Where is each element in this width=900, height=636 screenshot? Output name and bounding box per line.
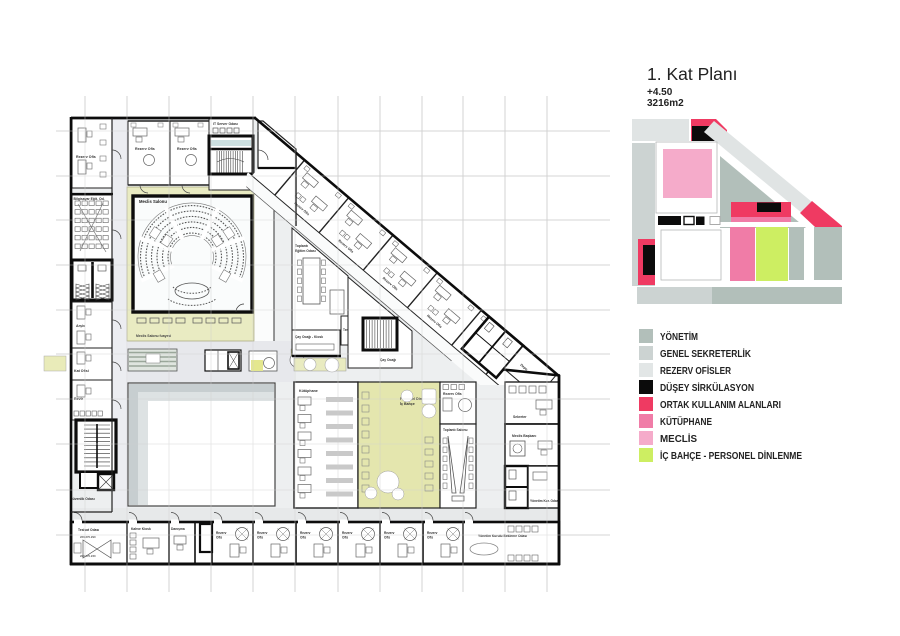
- svg-text:Rezerv: Rezerv: [257, 531, 268, 535]
- svg-text:Sekreter: Sekreter: [513, 415, 527, 419]
- svg-text:Rezerv Ofis: Rezerv Ofis: [443, 392, 462, 396]
- svg-text:3216m2: 3216m2: [647, 98, 684, 109]
- svg-text:Arşiv: Arşiv: [76, 324, 85, 328]
- svg-text:İÇ BAHÇE - PERSONEL DİNLENME: İÇ BAHÇE - PERSONEL DİNLENME: [660, 449, 802, 462]
- svg-text:Toplantı Salonu: Toplantı Salonu: [443, 428, 467, 432]
- svg-text:+4.50: +4.50: [647, 87, 673, 98]
- svg-text:ORTAK KULLANIM ALANLARI: ORTAK KULLANIM ALANLARI: [660, 399, 781, 411]
- svg-text:220.270.230: 220.270.230: [80, 554, 96, 558]
- svg-text:Ofis: Ofis: [216, 536, 222, 540]
- svg-text:Rezerv: Rezerv: [300, 531, 311, 535]
- svg-text:YÖNETİM: YÖNETİM: [660, 330, 698, 343]
- svg-text:Rezerv: Rezerv: [427, 531, 438, 535]
- svg-text:Bilgisayar Eğit. Od.: Bilgisayar Eğit. Od.: [74, 197, 105, 201]
- svg-text:Kahve Kiosk: Kahve Kiosk: [131, 527, 151, 531]
- svg-text:DÜŞEY SİRKÜLASYON: DÜŞEY SİRKÜLASYON: [660, 381, 754, 394]
- svg-text:KÜTÜPHANE: KÜTÜPHANE: [660, 415, 712, 428]
- svg-text:Tesisat Odası: Tesisat Odası: [78, 528, 99, 532]
- svg-text:1. Kat Planı: 1. Kat Planı: [647, 64, 737, 84]
- svg-text:İç Bahçe: İç Bahçe: [400, 402, 415, 406]
- svg-text:Çay Ocağı: Çay Ocağı: [380, 358, 396, 362]
- svg-text:Danışma: Danışma: [171, 527, 185, 531]
- svg-text:Rezerv: Rezerv: [342, 531, 353, 535]
- svg-text:MECLİS: MECLİS: [660, 432, 697, 445]
- svg-text:220.270.290: 220.270.290: [80, 535, 96, 539]
- svg-text:Rezerv: Rezerv: [216, 531, 227, 535]
- svg-text:Kütüphane: Kütüphane: [299, 389, 318, 393]
- svg-text:Kat Ofisi: Kat Ofisi: [74, 369, 89, 373]
- svg-text:REZERV OFİSLER: REZERV OFİSLER: [660, 364, 731, 377]
- svg-text:Güvenlik Odası: Güvenlik Odası: [70, 497, 95, 501]
- svg-text:Rezerv Ofis: Rezerv Ofis: [177, 147, 197, 151]
- svg-text:IT Server Odası: IT Server Odası: [213, 122, 238, 126]
- svg-text:Ofis: Ofis: [342, 536, 348, 540]
- svg-text:Eğitim Odası: Eğitim Odası: [295, 249, 316, 253]
- svg-text:Yönetim Kur. Odası: Yönetim Kur. Odası: [530, 499, 560, 503]
- svg-text:Rezerv Ofis: Rezerv Ofis: [135, 147, 155, 151]
- svg-text:Rezerv: Rezerv: [384, 531, 395, 535]
- svg-text:Ofis: Ofis: [257, 536, 263, 540]
- svg-text:Ofis: Ofis: [427, 536, 433, 540]
- svg-text:Çay Ocağı - Kiosk: Çay Ocağı - Kiosk: [295, 335, 323, 339]
- svg-text:GENEL SEKRETERLİK: GENEL SEKRETERLİK: [660, 347, 751, 360]
- svg-text:Toplantı: Toplantı: [295, 244, 308, 248]
- svg-text:Rezerv Ofis: Rezerv Ofis: [76, 155, 96, 159]
- svg-text:Meclis Başkanı: Meclis Başkanı: [512, 434, 536, 438]
- svg-text:Ofis: Ofis: [384, 536, 390, 540]
- svg-text:Ofis: Ofis: [300, 536, 306, 540]
- svg-text:Meclis Salonu fuayesi: Meclis Salonu fuayesi: [136, 334, 171, 338]
- svg-text:Meclis Salonu: Meclis Salonu: [139, 199, 167, 204]
